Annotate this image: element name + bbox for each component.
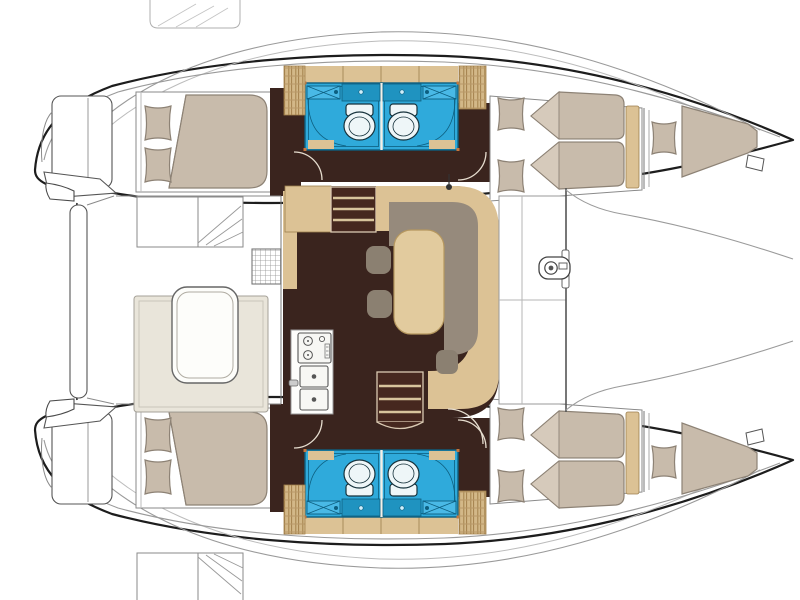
dining-table xyxy=(394,230,444,334)
pillow xyxy=(498,98,524,130)
washbasin xyxy=(423,86,456,99)
toilet xyxy=(388,104,419,140)
steps-to-port-hull xyxy=(331,187,376,232)
salon xyxy=(283,174,499,444)
bathrooms xyxy=(304,66,460,151)
stool xyxy=(436,350,458,374)
outboard-step-box xyxy=(150,0,240,28)
galley xyxy=(289,330,333,414)
steps-to-starboard-hull xyxy=(377,372,423,429)
pillow xyxy=(652,122,676,154)
foredeck xyxy=(499,188,793,412)
stool xyxy=(367,290,392,318)
faucet-icon xyxy=(289,380,298,386)
stove-icon xyxy=(298,333,331,363)
support-post xyxy=(446,184,452,190)
headboard-panel xyxy=(626,106,639,188)
trampoline-edge xyxy=(566,341,793,410)
pillow xyxy=(145,148,171,182)
catamaran-plan-svg xyxy=(0,0,800,600)
forward-cabin xyxy=(490,92,642,201)
washbasin xyxy=(307,86,340,99)
pillow xyxy=(498,160,524,192)
stool xyxy=(366,246,391,274)
transom-swim-platform xyxy=(41,96,116,198)
trampoline-edge xyxy=(566,190,793,259)
cockpit-steps-port xyxy=(137,197,243,247)
bow-cleat xyxy=(746,155,764,171)
floor-plan xyxy=(0,0,800,600)
cabinet xyxy=(285,186,331,232)
cockpit-steps-starboard xyxy=(137,553,243,600)
port-hull xyxy=(35,0,793,203)
pillow xyxy=(145,106,171,140)
deck-grate xyxy=(252,249,281,284)
toilet xyxy=(344,104,375,140)
cockpit-table xyxy=(172,287,238,383)
stern-platform xyxy=(46,183,114,417)
